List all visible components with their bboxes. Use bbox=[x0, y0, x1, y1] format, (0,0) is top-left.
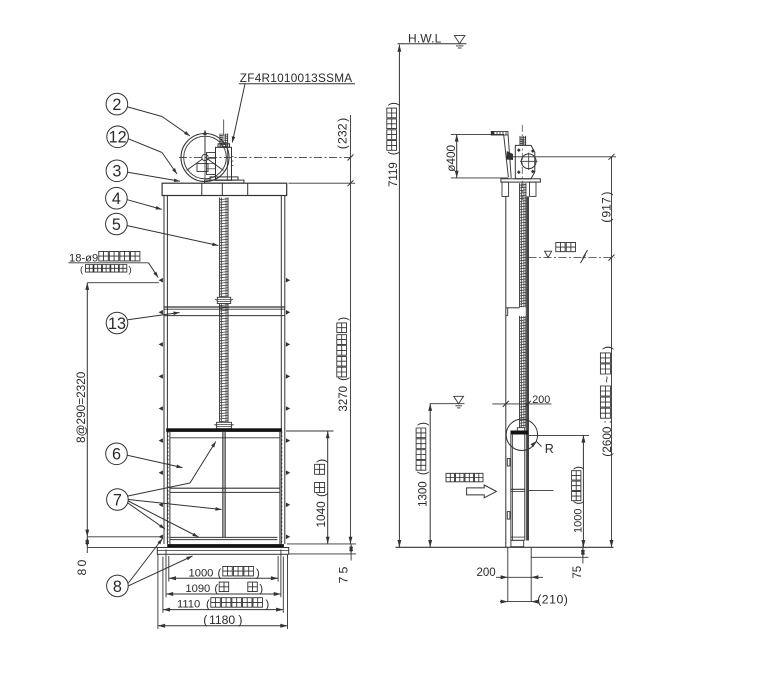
svg-text:): ) bbox=[338, 317, 350, 321]
svg-text:3: 3 bbox=[112, 163, 121, 181]
svg-text:4: 4 bbox=[112, 190, 121, 208]
svg-text:): ) bbox=[259, 583, 263, 595]
svg-text:8@290=2320: 8@290=2320 bbox=[74, 371, 88, 443]
svg-text:1090: 1090 bbox=[185, 583, 210, 595]
svg-text:(: ( bbox=[417, 471, 429, 475]
svg-text:232: 232 bbox=[336, 123, 350, 144]
svg-text:5: 5 bbox=[337, 566, 351, 573]
svg-text:0: 0 bbox=[75, 559, 89, 566]
svg-text:75: 75 bbox=[572, 566, 584, 579]
svg-text:): ) bbox=[266, 599, 270, 611]
svg-text:5: 5 bbox=[112, 216, 121, 234]
svg-text:): ) bbox=[417, 422, 429, 426]
svg-text:1110: 1110 bbox=[177, 599, 200, 611]
svg-text:7: 7 bbox=[337, 577, 351, 584]
svg-text:): ) bbox=[256, 567, 260, 579]
svg-text:(: ( bbox=[572, 501, 584, 505]
svg-text:(: ( bbox=[214, 583, 218, 595]
svg-text:): ) bbox=[572, 466, 584, 470]
svg-text:7: 7 bbox=[113, 491, 122, 509]
svg-text:1300: 1300 bbox=[417, 481, 429, 507]
svg-text:R: R bbox=[545, 442, 554, 456]
svg-text:200: 200 bbox=[532, 394, 550, 406]
svg-text::: : bbox=[600, 420, 614, 423]
svg-text:): ) bbox=[600, 192, 614, 196]
svg-text:13: 13 bbox=[108, 315, 126, 333]
svg-text:(210): (210) bbox=[537, 593, 568, 607]
svg-text:8: 8 bbox=[75, 569, 89, 576]
svg-text:): ) bbox=[238, 613, 242, 627]
svg-text:): ) bbox=[129, 264, 132, 275]
svg-text:): ) bbox=[600, 346, 614, 350]
svg-text:ZF4R1010013SSMA: ZF4R1010013SSMA bbox=[240, 71, 353, 85]
svg-text:(: ( bbox=[600, 219, 614, 223]
svg-text:2: 2 bbox=[112, 96, 121, 114]
svg-text:(: ( bbox=[388, 151, 400, 155]
svg-text:1000: 1000 bbox=[189, 567, 214, 579]
svg-text:~: ~ bbox=[600, 376, 614, 383]
svg-text:(: ( bbox=[314, 493, 328, 497]
svg-text:): ) bbox=[336, 118, 350, 122]
svg-text:200: 200 bbox=[477, 567, 496, 579]
svg-text:12: 12 bbox=[109, 129, 127, 147]
svg-text:917: 917 bbox=[600, 197, 614, 218]
svg-text:1000: 1000 bbox=[572, 509, 584, 533]
svg-text:3270: 3270 bbox=[338, 386, 350, 412]
svg-text:(: ( bbox=[338, 377, 350, 381]
svg-text:1180: 1180 bbox=[209, 613, 235, 627]
svg-text:H.W.L: H.W.L bbox=[408, 31, 442, 45]
svg-text:(: ( bbox=[203, 613, 207, 627]
svg-text:(: ( bbox=[206, 599, 210, 611]
svg-text:(2600: (2600 bbox=[600, 426, 614, 457]
svg-text:(: ( bbox=[217, 567, 221, 579]
svg-text:8: 8 bbox=[113, 578, 122, 596]
svg-text:1040: 1040 bbox=[314, 501, 328, 528]
svg-text:7119: 7119 bbox=[388, 162, 400, 187]
svg-text:): ) bbox=[388, 102, 400, 106]
svg-text:): ) bbox=[314, 459, 328, 463]
svg-text:ø400: ø400 bbox=[444, 144, 458, 171]
svg-text:6: 6 bbox=[112, 446, 121, 464]
